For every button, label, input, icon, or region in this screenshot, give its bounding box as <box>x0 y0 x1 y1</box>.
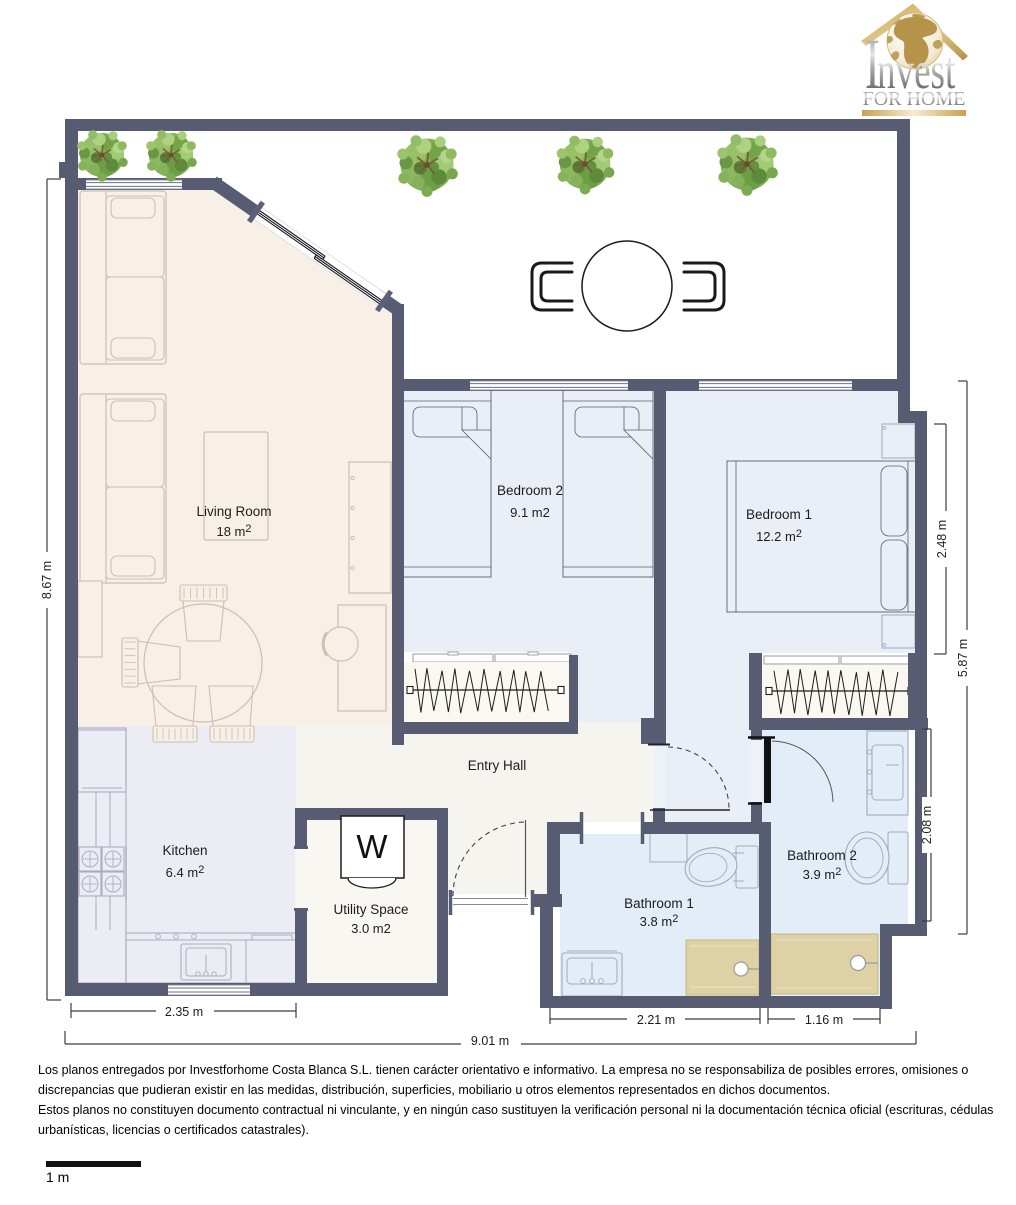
svg-text:Bedroom 1: Bedroom 1 <box>746 507 812 522</box>
svg-text:Bathroom 1: Bathroom 1 <box>624 896 694 911</box>
svg-text:2.21 m: 2.21 m <box>637 1013 675 1027</box>
svg-text:3.0 m2: 3.0 m2 <box>351 921 391 936</box>
svg-text:1.16 m: 1.16 m <box>805 1013 843 1027</box>
svg-text:2.48 m: 2.48 m <box>935 520 949 558</box>
svg-text:Utility Space: Utility Space <box>333 902 408 917</box>
svg-text:2.35 m: 2.35 m <box>165 1005 203 1019</box>
svg-text:Bedroom 2: Bedroom 2 <box>497 483 563 498</box>
svg-text:5.87 m: 5.87 m <box>956 639 970 677</box>
svg-text:Entry Hall: Entry Hall <box>468 758 527 773</box>
svg-text:Living Room: Living Room <box>196 504 271 519</box>
svg-text:W: W <box>356 828 388 865</box>
svg-text:Kitchen: Kitchen <box>162 843 207 858</box>
svg-text:9.1 m2: 9.1 m2 <box>510 505 550 520</box>
svg-text:9.01 m: 9.01 m <box>471 1034 509 1048</box>
svg-text:2.08 m: 2.08 m <box>920 806 934 844</box>
svg-text:8.67 m: 8.67 m <box>40 561 54 599</box>
svg-text:Bathroom 2: Bathroom 2 <box>787 848 857 863</box>
svg-text:FOR HOME: FOR HOME <box>863 88 966 110</box>
svg-text:12.2 m2: 12.2 m2 <box>756 528 802 544</box>
